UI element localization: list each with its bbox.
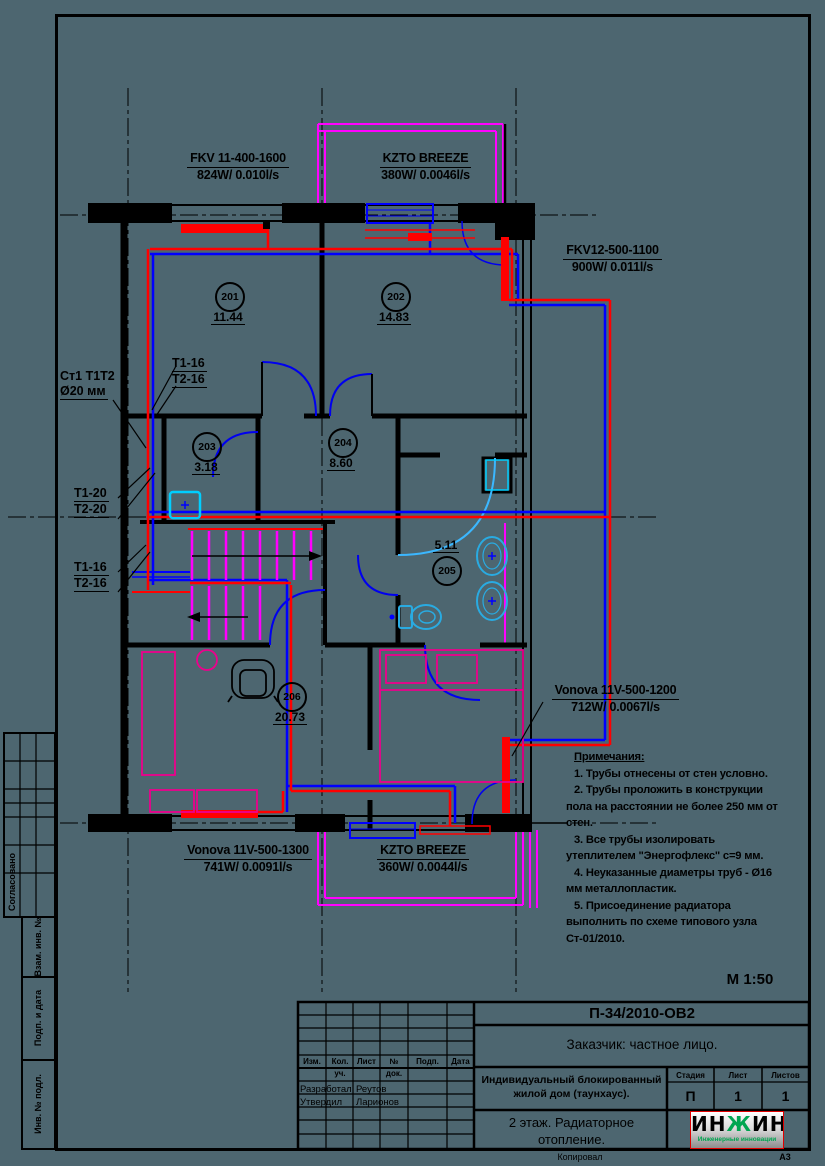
room-206-area: 20.73 (260, 710, 320, 725)
furniture (142, 650, 523, 812)
sheet-title: 2 этаж. Радиаторное отопление. (478, 1114, 665, 1148)
room-202-number: 202 (381, 282, 411, 312)
axis-grid (8, 88, 660, 992)
logo-text: ИНЖИН (691, 1112, 783, 1136)
room-206-number: 206 (277, 682, 307, 712)
role-developed: Разработал (300, 1083, 352, 1096)
stage-value: П (668, 1084, 713, 1108)
col-podp: Подп. (409, 1056, 446, 1068)
sheets-value: 1 (763, 1084, 808, 1108)
label-fkv11: FKV 11-400-1600 824W/ 0.010l/s (158, 151, 318, 183)
room-205-area: 5.11 (416, 538, 476, 553)
stamp-vzam-label: Взам. инв. № (33, 917, 43, 976)
margin-stamp-grid (4, 733, 55, 1149)
label-kzto-top: KZTO BREEZE 380W/ 0.0046l/s (348, 151, 503, 183)
label-riser: Ст1 Т1Т2 Ø20 мм (60, 369, 115, 400)
company-logo: ИНЖИН Инженерные инновации (690, 1111, 784, 1149)
note-line: 2. Трубы проложить в конструкции (566, 782, 779, 799)
label-t16-top: Т1-16 Т2-16 (172, 356, 207, 388)
note-line: стен. (566, 815, 779, 832)
stamp-podp-label: Подп. и дата (33, 990, 43, 1046)
sheet-value: 1 (715, 1084, 761, 1108)
doc-code: П-34/2010-ОВ2 (476, 1003, 808, 1024)
stamp-approved-label: Согласовано (7, 853, 17, 911)
label-vonova-bottom: Vonova 11V-500-1300 741W/ 0.0091l/s (168, 843, 328, 875)
object-description: Индивидуальный блокированный жилой дом (… (478, 1074, 665, 1101)
note-line: пола на расстоянии не более 250 мм от (566, 799, 779, 816)
col-izm: Изм. (299, 1056, 325, 1068)
client-line: Заказчик: частное лицо. (476, 1028, 808, 1062)
interior-walls (124, 221, 527, 830)
office-chair (228, 660, 278, 702)
scale-label: М 1:50 (705, 971, 795, 988)
note-line: 1. Трубы отнесены от стен условно. (566, 766, 779, 783)
label-t16-bottom: Т1-16 Т2-16 (74, 560, 109, 592)
col-kol: Кол. уч. (327, 1056, 353, 1080)
note-line: Ст-01/2010. (566, 931, 779, 948)
note-line: утеплителем "Энергофлекс" с=9 мм. (566, 848, 779, 865)
note-line: 3. Все трубы изолировать (566, 832, 779, 849)
room-201-area: 11.44 (198, 310, 258, 325)
role-approved: Утвердил (300, 1096, 342, 1109)
sheet-label: Лист (715, 1070, 761, 1082)
footer-copied-by: Копировал (540, 1152, 620, 1163)
room-204-number: 204 (328, 428, 358, 458)
room-205-number: 205 (432, 556, 462, 586)
room-204-area: 8.60 (311, 456, 371, 471)
room-203-area: 3.18 (176, 460, 236, 475)
room-202-area: 14.83 (364, 310, 424, 325)
stage-label: Стадия (668, 1070, 713, 1082)
room-203-number: 203 (192, 432, 222, 462)
name-approved: Ларионов (356, 1096, 399, 1109)
col-list: Лист (354, 1056, 379, 1068)
label-kzto-bottom: KZTO BREEZE 360W/ 0.0044l/s (348, 843, 498, 875)
stairs (187, 531, 322, 640)
name-developed: Реутов (356, 1083, 386, 1096)
label-vonova-right: Vonova 11V-500-1200 712W/ 0.0067l/s (538, 683, 693, 715)
note-line: выполнить по схеме типового узла (566, 914, 779, 931)
notes-title: Примечания: (566, 749, 779, 766)
sheets-label: Листов (763, 1070, 808, 1082)
label-t20: Т1-20 Т2-20 (74, 486, 109, 518)
footer-format: А3 (770, 1152, 800, 1163)
note-line: 4. Неуказанные диаметры труб - Ø16 (566, 865, 779, 882)
note-line: мм металлопластик. (566, 881, 779, 898)
col-ndok: № док. (381, 1056, 407, 1080)
note-line: 5. Присоединение радиатора (566, 898, 779, 915)
label-fkv12: FKV12-500-1100 900W/ 0.011l/s (540, 243, 685, 275)
drawing-sheet: FKV 11-400-1600 824W/ 0.010l/s KZTO BREE… (0, 0, 825, 1166)
logo-subtitle: Инженерные инновации (691, 1136, 783, 1143)
stamp-inv-label: Инв. № подл. (33, 1074, 43, 1134)
col-data: Дата (448, 1056, 473, 1068)
room-201-number: 201 (215, 282, 245, 312)
frame (57, 16, 810, 1150)
notes-block: Примечания: 1. Трубы отнесены от стен ус… (566, 749, 779, 947)
